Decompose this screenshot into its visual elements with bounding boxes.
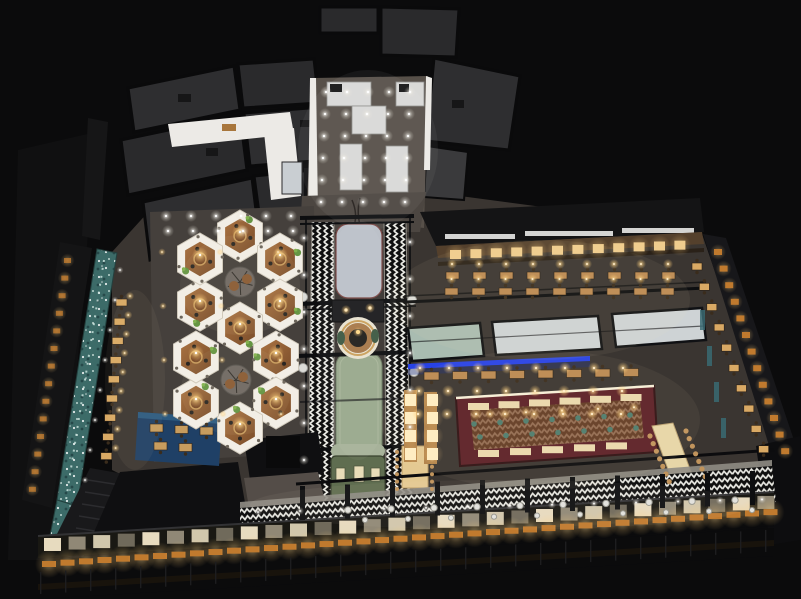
facade-glass-panes (69, 537, 86, 550)
white-stool (299, 364, 308, 373)
right-wall-cells (742, 332, 750, 338)
right-wall-tables-chair (740, 393, 743, 396)
dining-mid-lights (562, 413, 564, 415)
facade-grid-lines (515, 544, 516, 566)
hex-wall-cutout (257, 439, 260, 442)
promenade-stools-inner (663, 510, 668, 515)
upper-tables-chair (612, 296, 615, 299)
dining-upper-lights (505, 278, 507, 280)
upper-tables-chair (585, 284, 588, 287)
upper-tables-chair (477, 284, 480, 287)
walkway-lights-right (409, 426, 411, 428)
booth-lights (552, 246, 563, 255)
entry-lights (386, 135, 388, 137)
communal-chairs-right (683, 428, 688, 433)
walkway-lights-left (303, 311, 305, 313)
stream-tables-chair (108, 410, 111, 413)
right-wall-cells (725, 282, 733, 288)
hex-wall-cutout (297, 359, 300, 362)
promenade-lights (257, 511, 259, 513)
walkway-lights-right (409, 352, 411, 354)
glass-vestibule (282, 162, 302, 194)
nook-tables-top (150, 424, 163, 432)
hex-seat (231, 242, 235, 246)
stream-table-lights (127, 314, 129, 316)
stream-tables (114, 318, 125, 325)
roof-panel (238, 59, 319, 108)
hex-wall-cutout (266, 422, 269, 425)
hex-wall-cutout (221, 255, 224, 258)
dining-upper-lights (478, 263, 480, 265)
bar-stools-front (601, 414, 607, 420)
entry-lights (409, 91, 411, 93)
mid-row-tables (510, 371, 525, 379)
right-wall-cells (753, 365, 761, 371)
restaurant-aerial-render (0, 0, 801, 599)
promenade-lights (383, 508, 385, 510)
mid-row-tables-chair (430, 381, 433, 384)
stream-edge-lights (99, 389, 101, 391)
entry-lights (366, 113, 368, 115)
bar-pendants (525, 411, 527, 413)
entry-lights (384, 179, 386, 181)
communal-chairs-right (690, 444, 695, 449)
hex-area-lights (221, 359, 223, 361)
right-wall-tables-chair (703, 279, 706, 282)
mid-row-tables-chair (515, 366, 518, 369)
right-wall-tables (692, 263, 702, 270)
hex-wall-cutout (196, 235, 199, 238)
boh-corridor-lights (242, 230, 244, 232)
right-wall-cells (736, 315, 744, 321)
promenade-stools-inner (405, 516, 410, 521)
facade-grid-lines (690, 534, 691, 556)
dining-upper-lights (451, 263, 453, 265)
nook-tables-bottom (154, 442, 167, 450)
hex-plant-highlight (182, 267, 186, 271)
communal-chairs-left (651, 441, 656, 446)
upper-tables-chair (504, 284, 507, 287)
dining-mid-lights (504, 413, 506, 415)
booth-lights (450, 250, 461, 259)
promenade-posts (705, 473, 710, 507)
hex-wall-cutout (282, 381, 285, 384)
bar-counter-top (529, 399, 550, 406)
nook-tables-top-chair (180, 421, 183, 424)
mid-row-tables-chair (629, 364, 632, 367)
bar-counter-bottom (478, 450, 499, 457)
nook-tables-top-chair (180, 434, 183, 437)
booth-column-cells-b (427, 448, 438, 460)
booth-lamp (356, 330, 360, 334)
dining-mid-lights (593, 367, 595, 369)
walkway-lights-left (303, 274, 305, 276)
bar-counter-top (499, 401, 520, 408)
facade-grid-lines (165, 565, 166, 587)
dining-mid-lights (417, 413, 419, 415)
bar-counter-bottom (574, 444, 595, 451)
dining-upper-lights (532, 263, 534, 265)
nook-tables-bottom-chair (159, 451, 162, 454)
roof-vent (300, 120, 310, 127)
dining-upper-lights (478, 278, 480, 280)
promenade-posts (570, 477, 575, 511)
entry-lights (345, 113, 347, 115)
stream-tables (103, 433, 114, 440)
boh-corridor-lights (165, 215, 167, 217)
right-wall-glass (700, 310, 705, 330)
dining-mid-lights (535, 367, 537, 369)
hex-area-lights (164, 413, 166, 415)
dining-upper-lights (613, 263, 615, 265)
communal-chairs-right (696, 459, 701, 464)
dining-upper-lights (667, 278, 669, 280)
booth-lights (654, 242, 665, 251)
stream-table-lights (120, 390, 122, 392)
mid-row-tables-chair (572, 378, 575, 381)
promenade-lights (761, 499, 763, 501)
walkway-lights-right (409, 389, 411, 391)
right-wall-tables-chair (703, 291, 706, 294)
right-wall-tables (729, 365, 739, 372)
dining-upper-lights (559, 263, 561, 265)
promenade-lights (551, 504, 553, 506)
hex-area-lights (279, 359, 281, 361)
promenade-posts (660, 474, 665, 508)
dining-mid-lights (477, 367, 479, 369)
right-wall-glass (714, 382, 719, 402)
upper-tables-chair (531, 296, 534, 299)
stream-table-lights (117, 428, 119, 430)
mid-row-tables (424, 372, 439, 380)
entry-lights (367, 91, 369, 93)
train-side-chairs-right (430, 480, 434, 484)
train-side-chairs-right (430, 472, 434, 476)
bar-stools-back (633, 425, 639, 431)
communal-chairs-right (699, 466, 704, 471)
right-wall-tables-chair (710, 299, 713, 302)
stream-tables (108, 376, 119, 383)
right-wall-tables-chair (695, 271, 698, 274)
right-wall-tables-chair (747, 401, 750, 404)
hex-seat (268, 261, 272, 265)
round-booth (337, 317, 379, 359)
stream-edge-lights (84, 479, 86, 481)
booth-green-seat (337, 331, 345, 345)
right-wall-cells (731, 299, 739, 305)
walkway-lights-left (303, 459, 305, 461)
entry-lights (362, 201, 364, 203)
left-wall-cells (45, 381, 52, 386)
booth-green-seat (371, 329, 379, 343)
dining-upper-lights (640, 263, 642, 265)
hex-plant-highlight (202, 383, 206, 387)
boh-corridor-lights (190, 215, 192, 217)
dining-mid-lights (620, 413, 622, 415)
promenade-stools-inner (448, 515, 453, 520)
bar-stools-front (627, 412, 633, 418)
right-wall-cells (714, 249, 722, 255)
dining-mid-lights (446, 413, 448, 415)
stream-table-lights (122, 371, 124, 373)
right-wall-tables (736, 385, 746, 392)
hex-area-lights (222, 413, 224, 415)
hex-wall-cutout (180, 316, 183, 319)
facade-grid-lines (740, 531, 741, 553)
dining-upper-lights (667, 263, 669, 265)
hex-seat (208, 260, 212, 264)
bar-stools-back (529, 431, 535, 437)
hex-wall-cutout (226, 445, 229, 448)
entry-lights (365, 135, 367, 137)
promenade-posts (525, 479, 530, 513)
entry-lights (364, 157, 366, 159)
train-window (336, 468, 345, 481)
entry-lights (405, 179, 407, 181)
right-wall-tables (751, 425, 761, 432)
roof-top-panel (320, 7, 378, 33)
hex-wall-cutout (294, 319, 297, 322)
stream-tables-chair (116, 345, 119, 348)
mid-row-tables-chair (544, 366, 547, 369)
nook-tables-top-chair (155, 433, 158, 436)
nook-tables-bottom-chair (184, 439, 187, 442)
left-wall-cells (56, 311, 63, 316)
left-wall-cells (34, 452, 41, 457)
upper-tables (526, 288, 539, 295)
upper-tables (580, 288, 593, 295)
boh-corridor-lights (240, 215, 242, 217)
bar-counter-bottom (510, 448, 531, 455)
dining-mid-lights (447, 390, 449, 392)
hex-area-lights (220, 305, 222, 307)
hex-wall-cutout (251, 408, 254, 411)
left-wall-cells (51, 346, 58, 351)
right-wall-tables-chair (762, 442, 765, 445)
upper-tables (553, 288, 566, 295)
stream-edge-lights (114, 299, 116, 301)
dining-upper-lights (505, 263, 507, 265)
stream-tables (107, 395, 118, 402)
roof-vent (206, 148, 218, 156)
facade-glass-panes (93, 535, 110, 548)
boh-corridor-lights (292, 230, 294, 232)
mid-row-tables-chair (629, 377, 632, 380)
hex-area-lights (277, 251, 279, 253)
facade-grid-lines (440, 549, 441, 571)
hex-wall-cutout (223, 342, 226, 345)
clerestory-strip (525, 231, 613, 236)
right-wall-tables (699, 283, 709, 290)
stream-tables (101, 453, 112, 460)
facade-grid-lines (640, 537, 641, 559)
dining-mid-lights (475, 413, 477, 415)
facade-grid-lines (465, 547, 466, 569)
upper-tables (445, 288, 458, 295)
stream-tables-chair (110, 391, 113, 394)
communal-chairs-left (657, 456, 662, 461)
roof-top-panel (381, 7, 459, 57)
left-wall-cells (61, 276, 68, 281)
entry-lights (325, 91, 327, 93)
mid-row-tables-chair (515, 379, 518, 382)
hex-wall-cutout (227, 307, 230, 310)
facade-grid-lines (415, 550, 416, 572)
facade-grid-lines (615, 539, 616, 561)
facade-grid-lines (265, 559, 266, 581)
promenade-lights (593, 503, 595, 505)
facade-glass-panes (118, 534, 135, 547)
bar-stools-back (555, 430, 561, 436)
stream-tables-chair (107, 429, 110, 432)
hex-wall-cutout (211, 386, 214, 389)
bar-counter-top (560, 398, 581, 405)
train-side-chairs-right (430, 487, 434, 491)
render-canvas (0, 0, 801, 599)
hex-wall-cutout (295, 409, 298, 412)
communal-chairs-right (693, 451, 698, 456)
promenade-stools-inner (577, 512, 582, 517)
hex-wall-cutout (217, 419, 220, 422)
bar-counter-bottom (606, 442, 627, 449)
nook-tables-bottom (179, 444, 192, 452)
promenade-stools-outer (388, 506, 394, 512)
upper-tables-chair (612, 284, 615, 287)
court-branch (236, 380, 237, 393)
upper-tables (472, 288, 485, 295)
dining-mid-lights (533, 413, 535, 415)
right-wall-tables-chair (747, 413, 750, 416)
promenade-lights (509, 505, 511, 507)
hex-light (275, 352, 277, 354)
booth-lights (593, 244, 604, 253)
hex-wall-cutout (178, 417, 181, 420)
stream-tables-chair (114, 352, 117, 355)
left-wall-cells (42, 399, 49, 404)
hex-seat (248, 236, 252, 240)
promenade-stools-inner (706, 509, 711, 514)
promenade-stools-outer (474, 504, 480, 510)
roof-panel (426, 58, 520, 150)
bar-stools-front (523, 418, 529, 424)
walkway-lights-left (303, 348, 305, 350)
booth-column-cells-b (427, 412, 438, 424)
hex-wall-cutout (220, 296, 223, 299)
dining-upper-lights (640, 278, 642, 280)
facade-grid-lines (590, 540, 591, 562)
hex-wall-cutout (175, 390, 178, 393)
left-wall-cells (29, 487, 36, 492)
stream-tables (110, 357, 121, 364)
right-wall-tables (707, 304, 717, 311)
promenade-stools-inner (620, 511, 625, 516)
bar-stools-back (581, 428, 587, 434)
upper-tables-chair (585, 296, 588, 299)
dining-mid-lights (476, 390, 478, 392)
hex-plant-highlight (294, 249, 298, 253)
hex-seat (268, 303, 272, 307)
facade-grid-lines (390, 552, 391, 574)
hex-area-lights (161, 251, 163, 253)
nook-tables-top-chair (205, 436, 208, 439)
promenade-lights (677, 501, 679, 503)
nook-tables-top (200, 427, 213, 435)
facade-grid-lines (40, 572, 41, 594)
right-wall-tables (759, 446, 769, 453)
hex-area-lights (219, 251, 221, 253)
stream-tables (105, 414, 116, 421)
roof-vent (452, 100, 464, 108)
hex-seat (191, 264, 195, 268)
entry-lights (320, 201, 322, 203)
stream-table-lights (126, 333, 128, 335)
boh-corridor-lights (267, 230, 269, 232)
upper-tables-chair (504, 296, 507, 299)
court-branch (240, 282, 241, 295)
entry-lights (385, 157, 387, 159)
right-wall-cells (781, 448, 789, 454)
facade-orange-cells (764, 509, 778, 515)
nook-tables-top-chair (205, 423, 208, 426)
facade-grid-lines (215, 562, 216, 584)
facade-grid-lines (340, 555, 341, 577)
black-kiosk (266, 436, 300, 468)
entry-lights (341, 201, 343, 203)
hex-plant-highlight (210, 347, 214, 351)
hex-plant-highlight (294, 308, 298, 312)
right-wall-tables-chair (740, 381, 743, 384)
train-side-chairs-left (395, 480, 399, 484)
left-wall-cells (53, 328, 60, 333)
facade-glass-panes (44, 538, 61, 551)
entry-lights (407, 135, 409, 137)
steel-portal-beam (300, 216, 414, 218)
communal-chairs-left (647, 433, 652, 438)
entry-lights (324, 113, 326, 115)
canopy-gray (492, 316, 602, 355)
clerestory-strip (622, 228, 694, 233)
entry-lights (343, 157, 345, 159)
right-wall-tables-chair (732, 360, 735, 363)
entry-lights (363, 179, 365, 181)
hex-seat (190, 411, 194, 415)
promenade-posts (480, 480, 485, 514)
upper-tables-chair (666, 284, 669, 287)
stream-tables-chair (118, 314, 121, 317)
booth-column-cells-b (427, 394, 438, 406)
boh-corridor-lights (192, 230, 194, 232)
mid-row-tables (453, 372, 468, 380)
stream-tables-chair (105, 460, 108, 463)
stream-edge-lights (89, 449, 91, 451)
dining-upper-lights (451, 278, 453, 280)
nook-tables-bottom-chair (159, 438, 162, 441)
mid-row-tables-chair (458, 380, 461, 383)
dining-upper-lights (559, 278, 561, 280)
facade-grid-lines (290, 558, 291, 580)
booth-lights (470, 249, 481, 258)
right-wall-cells (748, 349, 756, 355)
stream-edge-lights (94, 419, 96, 421)
stream-edge-lights (119, 269, 121, 271)
entry-lights (387, 113, 389, 115)
bar-counter-bottom (542, 446, 563, 453)
right-wall-tables-chair (718, 332, 721, 335)
right-wall-tables-chair (695, 259, 698, 262)
booth-column-cells-a (405, 448, 416, 460)
hex-wall-cutout (278, 333, 281, 336)
dining-mid-lights (591, 413, 593, 415)
